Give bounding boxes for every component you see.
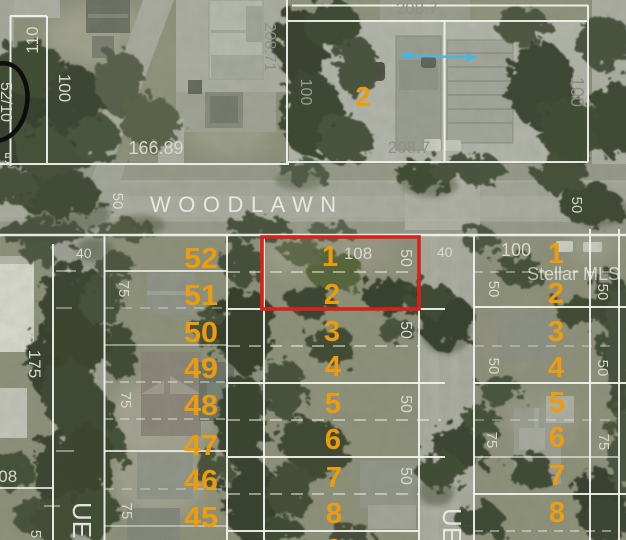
svg-text:45: 45: [184, 502, 218, 534]
svg-text:8: 8: [549, 497, 565, 529]
svg-text:50: 50: [109, 193, 126, 210]
svg-text:110: 110: [23, 26, 42, 53]
svg-text:100: 100: [567, 77, 587, 107]
svg-text:100: 100: [55, 74, 74, 102]
svg-text:208.7: 208.7: [396, 0, 439, 18]
svg-text:50: 50: [485, 281, 502, 298]
svg-text:50: 50: [594, 360, 611, 377]
svg-text:5: 5: [4, 150, 12, 167]
svg-text:51: 51: [184, 280, 218, 312]
svg-text:5: 5: [27, 530, 44, 538]
svg-text:5: 5: [549, 387, 565, 419]
svg-text:100: 100: [297, 79, 314, 106]
svg-text:44: 44: [184, 535, 218, 540]
svg-text:75: 75: [117, 392, 134, 409]
svg-text:50: 50: [397, 467, 414, 485]
svg-text:75: 75: [118, 503, 135, 520]
svg-text:46: 46: [184, 465, 218, 497]
svg-text:50: 50: [184, 317, 218, 349]
svg-text:75: 75: [595, 434, 612, 451]
svg-text:4: 4: [548, 352, 564, 384]
svg-text:2: 2: [355, 81, 371, 112]
svg-text:208.71: 208.71: [261, 23, 278, 72]
svg-text:7: 7: [326, 462, 342, 494]
svg-text:75: 75: [115, 281, 132, 298]
svg-text:WOODLAWN: WOODLAWN: [150, 192, 344, 217]
svg-text:6: 6: [325, 424, 341, 456]
svg-text:49: 49: [184, 353, 218, 385]
svg-text:40: 40: [437, 244, 453, 260]
svg-text:5: 5: [325, 388, 341, 420]
svg-text:50: 50: [568, 197, 585, 214]
svg-text:75: 75: [483, 432, 500, 449]
svg-text:2: 2: [324, 279, 340, 311]
svg-text:Stellar MLS: Stellar MLS: [527, 264, 620, 284]
svg-text:UE: UE: [437, 508, 467, 540]
svg-text:48: 48: [184, 390, 218, 422]
svg-text:8: 8: [326, 498, 342, 530]
svg-text:50: 50: [594, 284, 611, 301]
svg-text:52: 52: [184, 243, 218, 275]
svg-text:108: 108: [344, 244, 372, 263]
svg-text:4: 4: [325, 351, 341, 383]
svg-text:1: 1: [322, 241, 338, 273]
svg-text:7: 7: [549, 460, 565, 492]
svg-text:50: 50: [397, 249, 414, 267]
svg-text:50: 50: [397, 321, 414, 339]
svg-text:166.89: 166.89: [128, 138, 183, 158]
svg-text:6: 6: [549, 422, 565, 454]
svg-text:47: 47: [184, 430, 218, 462]
svg-text:3: 3: [324, 316, 340, 348]
svg-text:3: 3: [548, 316, 564, 348]
svg-text:52/10: 52/10: [0, 82, 14, 122]
svg-text:50: 50: [397, 395, 414, 413]
svg-text:108: 108: [0, 467, 17, 486]
svg-text:50: 50: [485, 358, 502, 375]
svg-text:40: 40: [76, 245, 92, 261]
svg-text:100: 100: [501, 240, 531, 260]
svg-text:UE: UE: [67, 502, 97, 538]
svg-text:9: 9: [326, 534, 342, 540]
svg-text:208.7: 208.7: [388, 138, 431, 157]
svg-text:175: 175: [25, 350, 44, 378]
